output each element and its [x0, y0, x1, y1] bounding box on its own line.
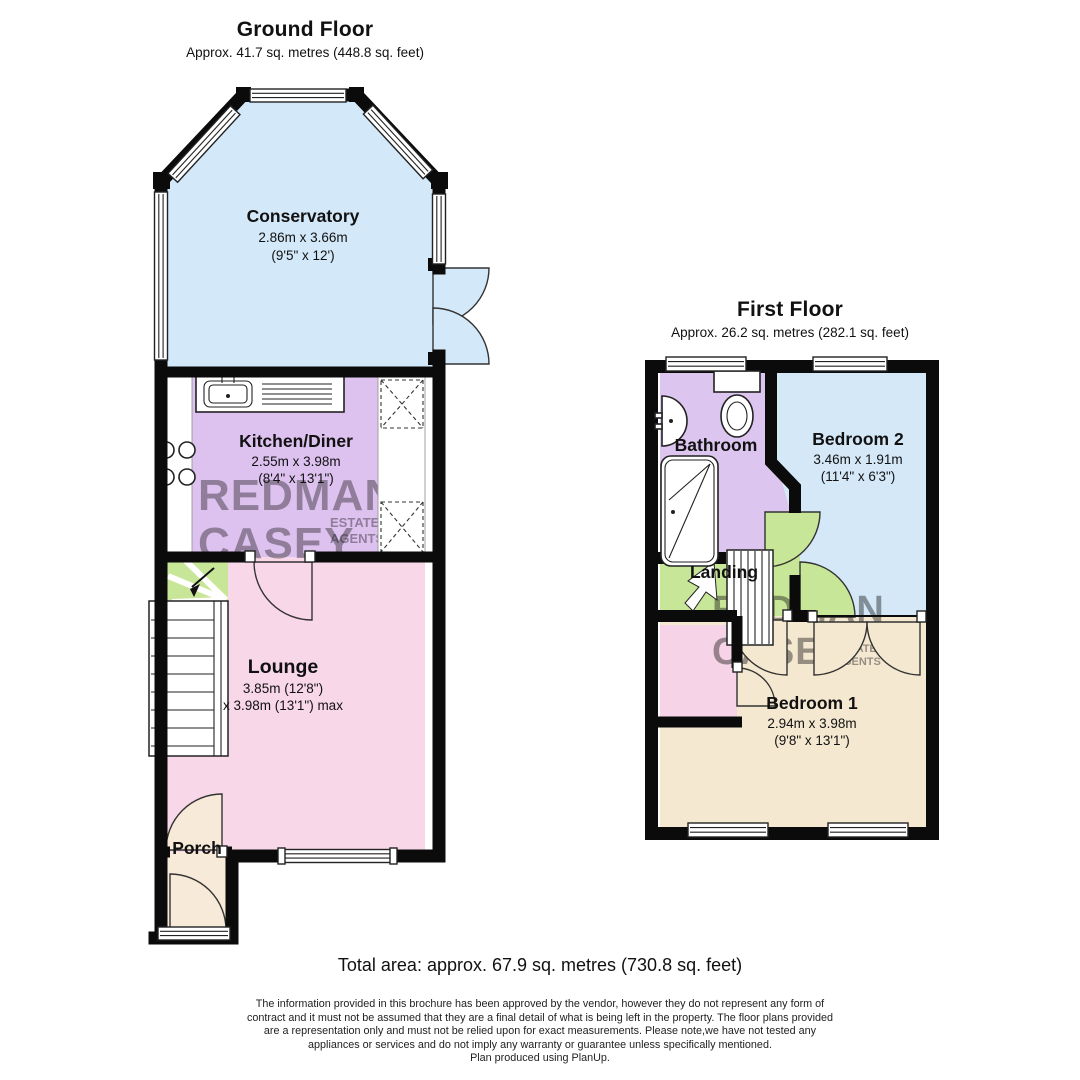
ground-floor-title: Ground Floor — [145, 18, 465, 42]
room-dims: 2.55m x 3.98m — [251, 454, 340, 469]
window-icon — [813, 357, 887, 371]
room-dims: (9'8" x 13'1") — [774, 733, 850, 748]
room-label-bedroom1: Bedroom 1 — [766, 693, 858, 713]
watermark-text: AGENTS — [330, 531, 385, 546]
door-post — [808, 611, 817, 622]
ground-floor-title-block: Ground Floor Approx. 41.7 sq. metres (44… — [145, 18, 465, 60]
window-icon — [828, 823, 908, 837]
room-label-lounge: Lounge — [248, 656, 319, 678]
door-post — [783, 610, 792, 621]
room-dims: (9'5" x 12') — [271, 248, 334, 263]
first-floor-area: Approx. 26.2 sq. metres (282.1 sq. feet) — [630, 325, 950, 340]
room-label-conservatory: Conservatory — [247, 206, 360, 226]
room-dims: (11'4" x 6'3") — [821, 469, 896, 484]
room-dims: 2.86m x 3.66m — [258, 230, 347, 245]
ground-floor-area: Approx. 41.7 sq. metres (448.8 sq. feet) — [145, 45, 465, 60]
disclaimer-text: The information provided in this brochur… — [0, 998, 1080, 1066]
room-label-landing: Landing — [690, 562, 758, 582]
disclaimer-line: are a representation only and must not b… — [0, 1025, 1080, 1039]
sink-icon — [196, 374, 344, 412]
room-dims: x 3.98m (13'1") max — [223, 698, 343, 713]
window-icon — [278, 848, 397, 864]
window-icon — [250, 89, 346, 102]
room-dims: 3.85m (12'8") — [243, 681, 323, 696]
watermark-text: ESTATE — [330, 515, 380, 530]
first-floor-title-block: First Floor Approx. 26.2 sq. metres (282… — [630, 298, 950, 340]
room-label-kitchen: Kitchen/Diner — [239, 431, 353, 451]
counter-left — [166, 374, 192, 555]
ground-floor-plan: REDMAN CASEY ESTATE AGENTS — [130, 75, 510, 955]
room-label-bedroom2: Bedroom 2 — [812, 429, 904, 449]
first-floor-title: First Floor — [630, 298, 950, 322]
window-icon — [688, 823, 768, 837]
disclaimer-line: contract and it must not be assumed that… — [0, 1012, 1080, 1026]
room-dims: (8'4" x 13'1") — [258, 471, 334, 486]
disclaimer-line: Plan produced using PlanUp. — [0, 1052, 1080, 1066]
door-post — [305, 551, 315, 562]
footer: Total area: approx. 67.9 sq. metres (730… — [0, 955, 1080, 1066]
window-icon — [158, 927, 230, 940]
first-floor-plan: REDMAN CASEY ESTATE AGENTS — [630, 345, 960, 855]
room-label-bathroom: Bathroom — [675, 435, 758, 455]
window-icon — [666, 357, 746, 371]
disclaimer-line: The information provided in this brochur… — [0, 998, 1080, 1012]
total-area-text: Total area: approx. 67.9 sq. metres (730… — [0, 955, 1080, 976]
counter-right — [378, 374, 425, 555]
window-icon — [155, 192, 168, 360]
door-post — [245, 551, 255, 562]
door-post — [917, 611, 926, 622]
room-label-porch: Porch — [172, 838, 222, 858]
door-post — [733, 662, 742, 672]
disclaimer-line: appliances or services and do not imply … — [0, 1039, 1080, 1053]
shower-icon — [661, 456, 718, 566]
room-dims: 2.94m x 3.98m — [767, 716, 856, 731]
window-icon — [433, 194, 446, 264]
room-dims: 3.46m x 1.91m — [813, 452, 902, 467]
